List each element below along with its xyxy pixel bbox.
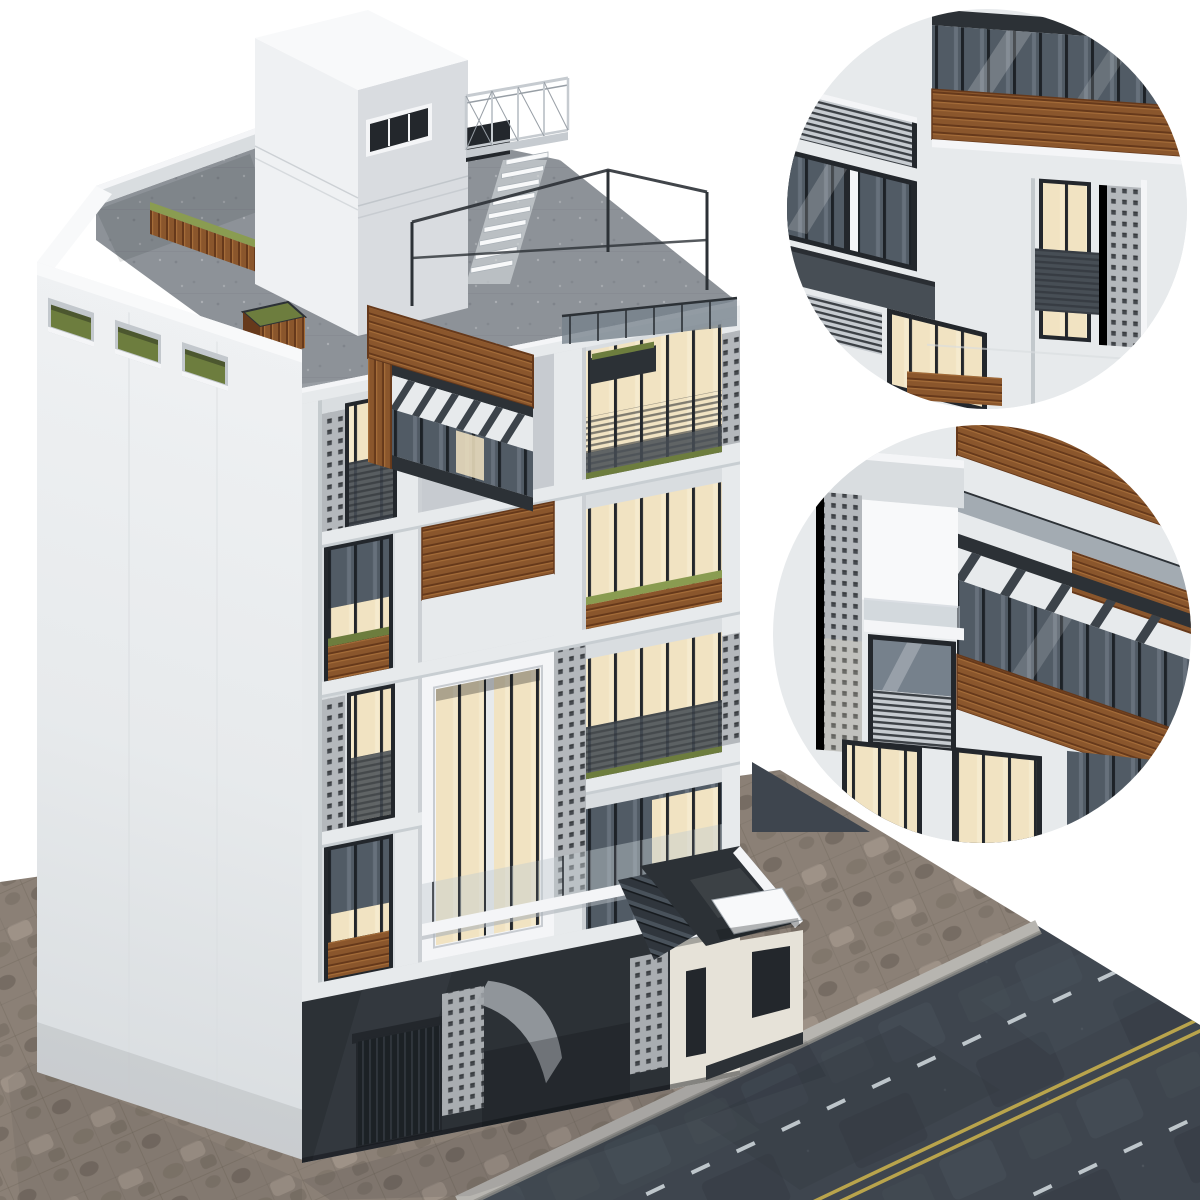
perf-frame (816, 491, 824, 750)
post (562, 856, 564, 898)
window-glass (858, 172, 912, 265)
left-wall (37, 262, 302, 1160)
post (484, 871, 486, 913)
post (510, 866, 512, 908)
window-glass (328, 839, 389, 915)
lit-pane (456, 430, 484, 480)
pier-shade (1031, 178, 1035, 422)
left-facade (37, 262, 302, 1160)
perforated-screen (722, 632, 740, 746)
tower-left-face (255, 38, 358, 336)
louver-slats (873, 689, 951, 748)
perforated-panel (630, 951, 668, 1075)
perforated-screen (722, 330, 740, 446)
pier-shade (318, 400, 322, 983)
pier (922, 748, 952, 851)
white-opening (862, 500, 958, 608)
post (432, 882, 434, 924)
perf-frame (1099, 185, 1107, 346)
perf-backlight (824, 638, 862, 753)
louver-post (912, 122, 917, 168)
mullion (850, 170, 858, 252)
wood-pillar (368, 358, 392, 469)
window-glass (328, 539, 389, 609)
architectural-render (0, 0, 1200, 1200)
post (588, 850, 590, 892)
rail-louvers (351, 750, 391, 822)
perforated-column (1107, 185, 1141, 347)
perforated-screen (322, 695, 345, 832)
perforated-panel (442, 986, 484, 1116)
render-stage (0, 0, 1200, 1200)
garage-door (357, 1024, 441, 1147)
entrance-doorway (752, 946, 790, 1018)
post (536, 861, 538, 903)
stair-tower (255, 10, 468, 336)
perforated-screen (322, 409, 345, 532)
post (458, 876, 460, 918)
post (614, 845, 616, 887)
